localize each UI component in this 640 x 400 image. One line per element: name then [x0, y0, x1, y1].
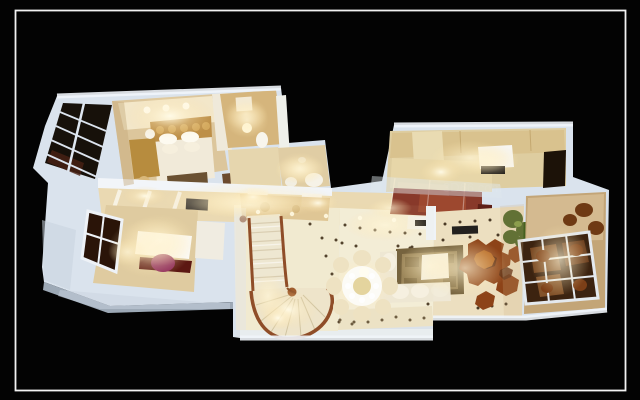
svg-text:3D66.com: 3D66.com: [443, 180, 502, 195]
